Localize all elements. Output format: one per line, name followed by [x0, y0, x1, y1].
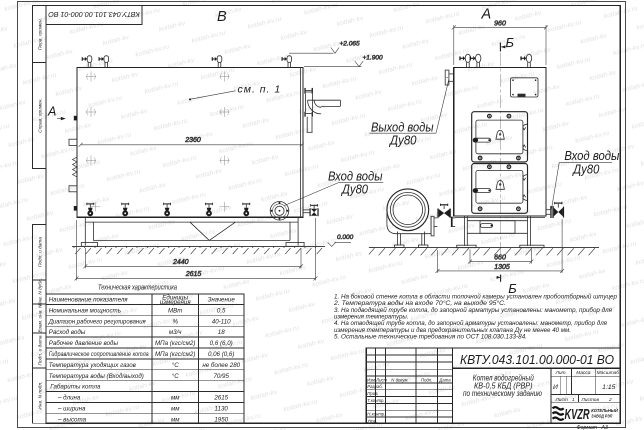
svg-text:см. п. 1: см. п. 1 — [238, 84, 282, 96]
svg-text:2: 2 — [608, 397, 612, 403]
svg-text:Гидравлическое сопротивление к: Гидравлическое сопротивление котла — [49, 351, 149, 358]
svg-text:2615: 2615 — [185, 271, 202, 278]
svg-text:мм: мм — [171, 416, 180, 423]
svg-text:Б: Б — [506, 35, 515, 50]
svg-text:Номинальная мощность: Номинальная мощность — [49, 307, 121, 314]
svg-text:м3/ч: м3/ч — [169, 329, 182, 336]
svg-text:Подп.: Подп. — [421, 377, 432, 382]
svg-text:Перв. примен.: Перв. примен. — [38, 18, 44, 50]
svg-text:Масса: Масса — [576, 370, 591, 376]
svg-text:1: 1 — [572, 397, 575, 403]
svg-text:0.000: 0.000 — [337, 234, 354, 241]
svg-text:А: А — [47, 105, 56, 119]
svg-text:Изм.Лист: Изм.Лист — [367, 377, 388, 382]
svg-text:1:15: 1:15 — [602, 384, 615, 391]
svg-text:Инв. N дубл.: Инв. N дубл. — [38, 278, 44, 306]
svg-text:Разраб.: Разраб. — [367, 384, 383, 389]
svg-text:Лит.: Лит. — [555, 370, 567, 376]
svg-text:1305: 1305 — [494, 264, 510, 271]
svg-text:мм: мм — [171, 406, 180, 413]
svg-text:5. Остальные технические треб: 5. Остальные технические требования по О… — [334, 333, 527, 341]
svg-text:Ду80: Ду80 — [572, 162, 600, 177]
svg-text:Наименование показателя: Наименование показателя — [49, 297, 129, 304]
svg-text:Масштаб: Масштаб — [597, 370, 620, 376]
svg-text:2615: 2615 — [213, 395, 228, 402]
svg-text:1. На боковой стенке котла в: 1. На боковой стенке котла в области топ… — [334, 292, 617, 300]
svg-text:°С: °С — [172, 362, 179, 369]
svg-text:N докум.: N докум. — [391, 377, 408, 382]
svg-text:Листов: Листов — [581, 397, 600, 403]
svg-text:Диапазон рабочего регулировани: Диапазон рабочего регулирования — [48, 318, 147, 325]
svg-text:по техническому заданию: по техническому заданию — [463, 389, 542, 398]
svg-text:Б: Б — [508, 281, 517, 296]
svg-text:1130: 1130 — [215, 406, 229, 413]
svg-text:Т.контр.: Т.контр. — [367, 398, 384, 403]
svg-text:Техническая характеристика: Техническая характеристика — [98, 285, 177, 292]
svg-text:– длина: – длина — [57, 395, 81, 402]
svg-text:%: % — [172, 318, 178, 325]
svg-text:В: В — [217, 9, 227, 25]
svg-text:2360: 2360 — [184, 137, 201, 144]
svg-text:И: И — [553, 384, 558, 391]
svg-text:40-110: 40-110 — [212, 318, 231, 325]
svg-text:+2.065: +2.065 — [340, 40, 360, 47]
svg-text:Температура уходящих газов: Температура уходящих газов — [49, 362, 137, 369]
svg-text:0,5: 0,5 — [217, 307, 226, 314]
svg-text:Подп. и дата: Подп. и дата — [38, 237, 44, 267]
svg-text:+1.900: +1.900 — [363, 54, 383, 61]
svg-text:– высота: – высота — [57, 416, 87, 423]
svg-text:Справ. примен.: Справ. примен. — [38, 98, 44, 133]
svg-text:18: 18 — [218, 329, 225, 336]
svg-text:0,06 (0,6): 0,06 (0,6) — [208, 351, 234, 358]
svg-text:0,6 (6,0): 0,6 (6,0) — [210, 340, 233, 347]
svg-text:1950: 1950 — [214, 416, 228, 423]
svg-text:не более 280: не более 280 — [202, 362, 240, 369]
svg-text:2. Температура воды на входе: 2. Температура воды на входе 70°С, на вы… — [333, 299, 506, 307]
svg-text:Взам. инв. N: Взам. инв. N — [38, 304, 44, 332]
svg-text:Дата: Дата — [438, 377, 451, 382]
svg-text:МВт: МВт — [168, 307, 182, 314]
svg-text:Лист: Лист — [555, 397, 568, 403]
svg-text:°С: °С — [172, 373, 179, 380]
svg-text:Ду80: Ду80 — [340, 182, 368, 197]
svg-text:70/95: 70/95 — [213, 373, 229, 380]
svg-text:Расход воды: Расход воды — [49, 329, 86, 336]
svg-text:660: 660 — [494, 254, 506, 261]
svg-text:Температура воды (Вход/выход): Температура воды (Вход/выход) — [49, 373, 144, 380]
svg-text:МПа (кгс/см2): МПа (кгс/см2) — [155, 351, 195, 358]
svg-text:мм: мм — [171, 395, 180, 402]
svg-text:KVZR: KVZR — [565, 407, 590, 423]
svg-text:Значение: Значение — [208, 297, 236, 304]
svg-text:Ду80: Ду80 — [388, 132, 417, 147]
svg-text:960: 960 — [494, 20, 506, 27]
svg-text:ЗАВОД РЭП: ЗАВОД РЭП — [591, 413, 613, 418]
svg-text:Н.контр.: Н.контр. — [367, 412, 385, 417]
svg-text:измерения: измерения — [160, 299, 192, 306]
svg-text:КВТУ.043.101.00.000-01 ВО: КВТУ.043.101.00.000-01 ВО — [460, 352, 614, 367]
svg-text:– ширина: – ширина — [57, 406, 86, 413]
svg-text:А3: А3 — [601, 425, 608, 430]
svg-text:Рабочее давление воды: Рабочее давление воды — [49, 340, 119, 347]
svg-text:2440: 2440 — [172, 259, 189, 266]
svg-text:А: А — [481, 7, 492, 23]
svg-text:Инв. N подл.: Инв. N подл. — [38, 382, 44, 410]
svg-text:Габариты котла: Габариты котла — [50, 384, 101, 391]
svg-text:КОТЕЛЬНЫЙ: КОТЕЛЬНЫЙ — [591, 406, 618, 413]
svg-text:Пров.: Пров. — [367, 391, 378, 396]
svg-text:Формат: Формат — [577, 425, 598, 430]
svg-text:КВТУ.043.101.00.000-01 ВО: КВТУ.043.101.00.000-01 ВО — [48, 10, 140, 19]
svg-text:Подп. и дата: Подп. и дата — [38, 335, 44, 365]
svg-text:МПа (кгс/см2): МПа (кгс/см2) — [155, 340, 195, 347]
svg-text:измерения температуры и два пр: измерения температуры и два предохраните… — [334, 326, 571, 334]
svg-text:Утв.: Утв. — [367, 418, 377, 423]
